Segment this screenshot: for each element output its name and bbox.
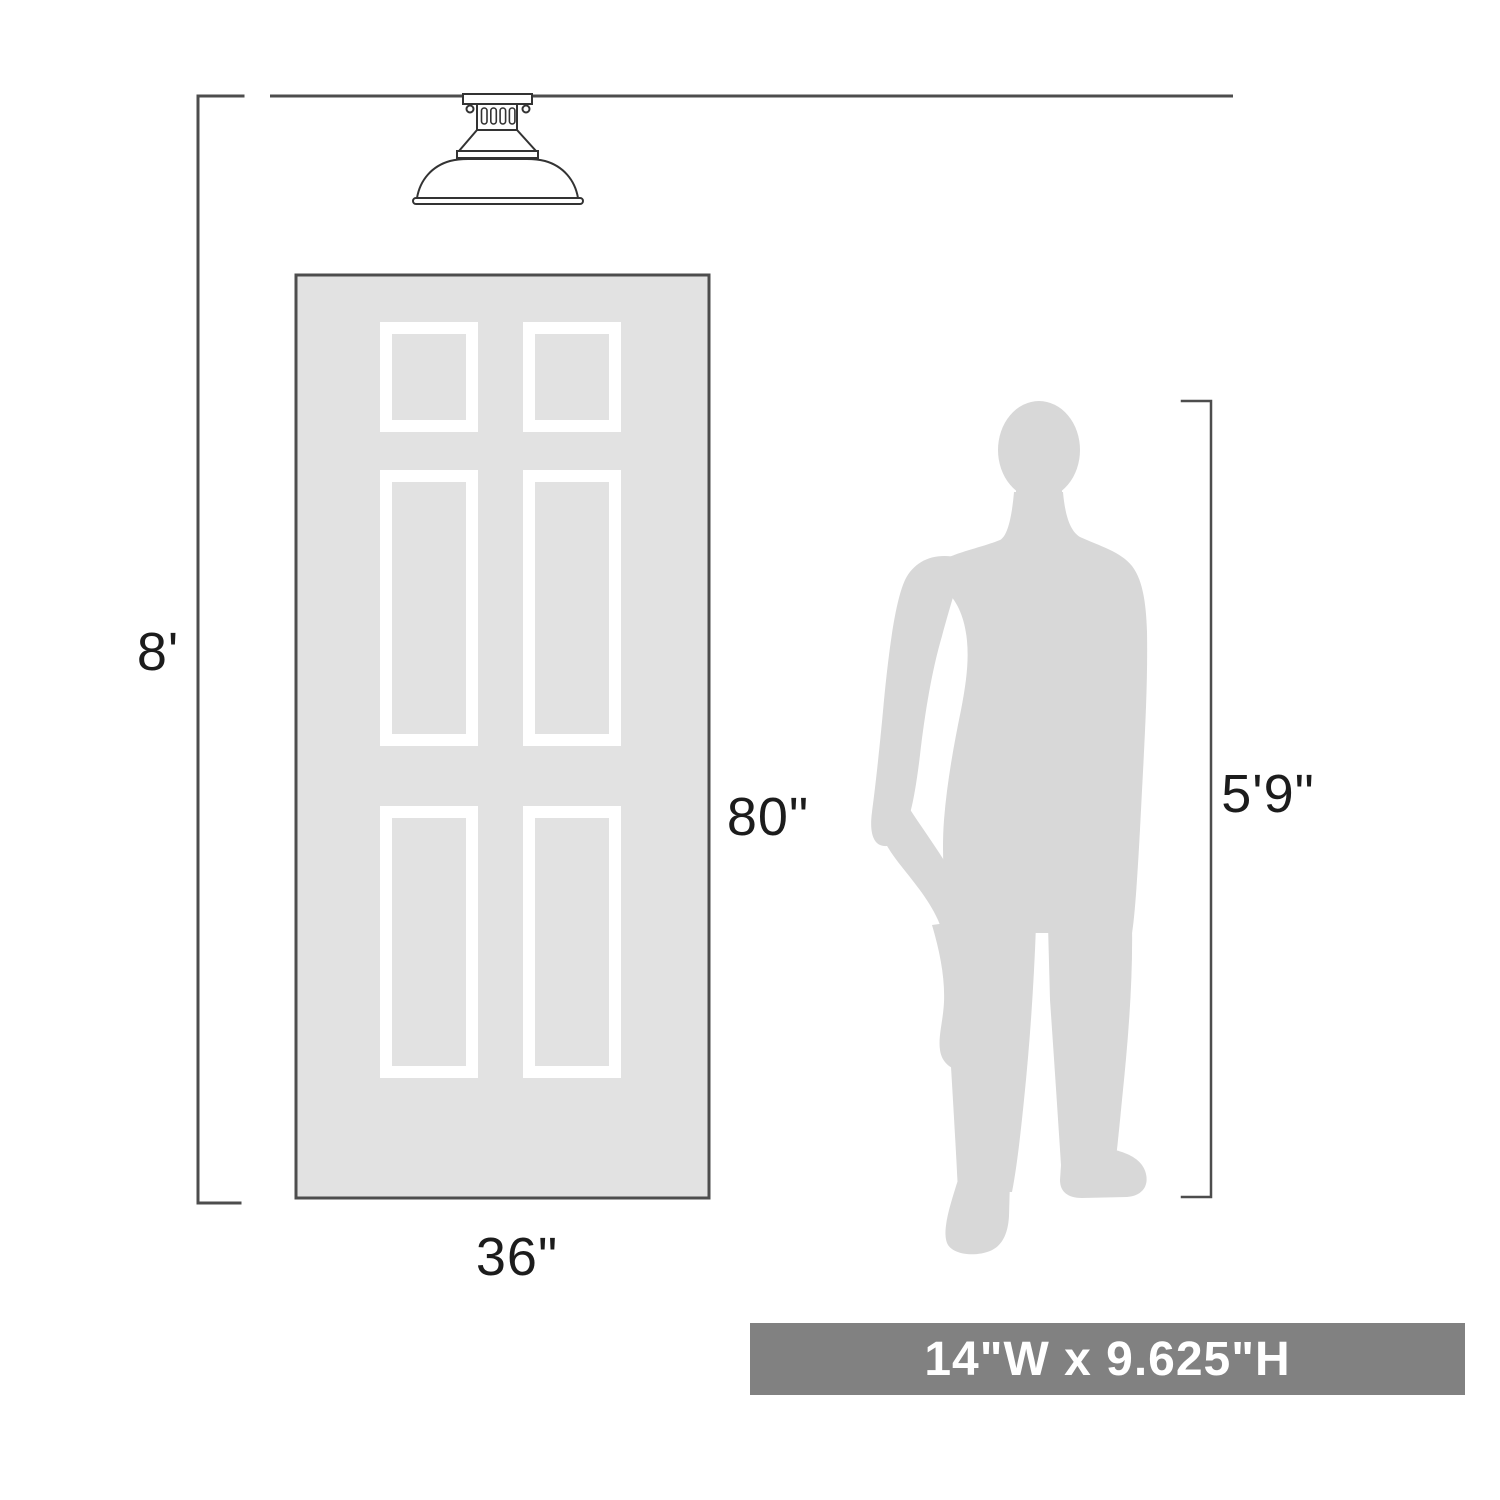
fixture-band — [457, 151, 538, 158]
man-right-shoe — [1060, 1150, 1147, 1198]
fixture-canopy — [463, 94, 532, 104]
ceiling-height-label: 8' — [137, 621, 179, 683]
person-height-label: 5'9" — [1221, 763, 1315, 825]
door-panel-inner — [535, 818, 609, 1066]
fixture-shade-dome — [417, 159, 578, 198]
fixture-shade-rim — [413, 198, 583, 204]
door-panel-inner — [392, 818, 466, 1066]
door-panel-middle-left — [380, 470, 478, 746]
flush-mount-light-fixture — [413, 94, 583, 204]
fixture-vent-slot — [491, 108, 497, 124]
fixture-vent-slot — [509, 108, 515, 124]
man-right-leg — [1048, 925, 1132, 1165]
door-panel-inner — [392, 334, 466, 420]
man-torso — [934, 492, 1148, 933]
fixture-vent-slot — [482, 108, 488, 124]
fixture-cone — [459, 130, 536, 151]
door-panel-bottom-left — [380, 806, 478, 1078]
fixture-vent-slot — [500, 108, 506, 124]
man-silhouette — [871, 401, 1147, 1254]
person-height-bracket — [1182, 401, 1211, 1197]
door-height-label: 80" — [727, 786, 809, 848]
six-panel-door — [296, 275, 709, 1198]
fixture-size-banner: 14"W x 9.625"H — [750, 1323, 1465, 1395]
door-panel-inner — [392, 482, 466, 734]
scale-diagram: 8' 80" 36" 5'9" 14"W x 9.625"H — [0, 0, 1500, 1500]
door-width-label: 36" — [476, 1226, 558, 1288]
door-panel-top-left — [380, 322, 478, 432]
diagram-canvas — [0, 0, 1500, 1500]
door-panel-inner — [535, 334, 609, 420]
door-panel-bottom-right — [523, 806, 621, 1078]
man-left-leg — [940, 925, 1036, 1192]
man-left-shoe — [945, 1180, 1010, 1254]
door-panel-middle-right — [523, 470, 621, 746]
door-body — [296, 275, 709, 1198]
door-panel-top-right — [523, 322, 621, 432]
fixture-screw-right — [523, 106, 530, 113]
ceiling-height-bracket — [198, 96, 243, 1203]
fixture-size-text: 14"W x 9.625"H — [924, 1332, 1290, 1387]
fixture-screw-left — [467, 106, 474, 113]
door-panel-inner — [535, 482, 609, 734]
